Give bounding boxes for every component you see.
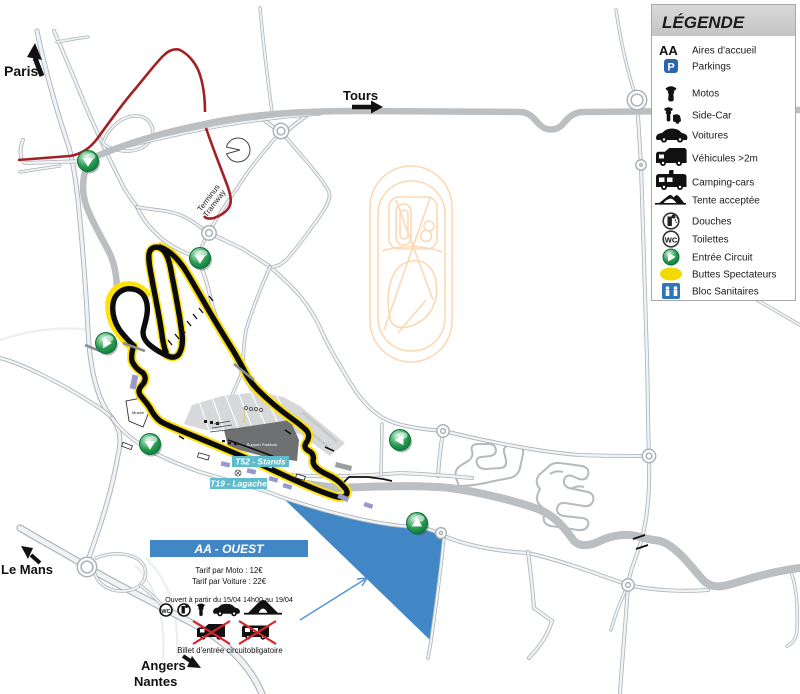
- svg-text:Motos: Motos: [692, 89, 719, 100]
- svg-text:Tarif par Moto : 12€: Tarif par Moto : 12€: [195, 566, 263, 575]
- svg-text:Toilettes: Toilettes: [692, 235, 729, 246]
- svg-text:WC: WC: [161, 609, 170, 615]
- svg-text:Tours: Tours: [343, 88, 378, 103]
- svg-text:Paris: Paris: [4, 63, 38, 79]
- svg-text:AA: AA: [659, 43, 678, 58]
- svg-text:Billet d'entrée circuitobligat: Billet d'entrée circuitobligatoire: [177, 646, 283, 655]
- svg-text:Buttes Spectateurs: Buttes Spectateurs: [692, 270, 777, 281]
- svg-text:Douches: Douches: [692, 217, 731, 228]
- svg-text:Entrée Circuit: Entrée Circuit: [692, 253, 753, 264]
- svg-text:T52 - Stands: T52 - Stands: [235, 457, 286, 467]
- svg-text:Nantes: Nantes: [134, 674, 177, 689]
- svg-text:Véhicules >2m: Véhicules >2m: [692, 154, 758, 165]
- svg-text:LÉGENDE: LÉGENDE: [662, 13, 745, 32]
- svg-text:Ouvert à partir du 15/04 14h00: Ouvert à partir du 15/04 14h00 au 19/04: [165, 595, 293, 604]
- svg-text:Parkings: Parkings: [692, 62, 731, 73]
- svg-text:Bloc Sanitaires: Bloc Sanitaires: [692, 287, 759, 298]
- svg-text:Le Mans: Le Mans: [1, 562, 53, 577]
- svg-text:AA - OUEST: AA - OUEST: [194, 542, 266, 556]
- svg-text:Aires d'accueil: Aires d'accueil: [692, 46, 756, 57]
- svg-text:Voitures: Voitures: [692, 131, 728, 142]
- svg-text:Camping-cars: Camping-cars: [692, 178, 754, 189]
- svg-text:Tarif par Voiture : 22€: Tarif par Voiture : 22€: [192, 577, 267, 586]
- svg-text:Musée: Musée: [132, 410, 145, 415]
- svg-text:T19 - Lagache: T19 - Lagache: [210, 479, 267, 489]
- svg-text:Tente acceptée: Tente acceptée: [692, 196, 760, 207]
- svg-text:WC: WC: [665, 236, 678, 245]
- svg-text:Angers: Angers: [141, 658, 186, 673]
- svg-text:P: P: [667, 62, 674, 74]
- svg-text:Support Paddock: Support Paddock: [247, 442, 278, 447]
- svg-text:Side-Car: Side-Car: [692, 111, 732, 122]
